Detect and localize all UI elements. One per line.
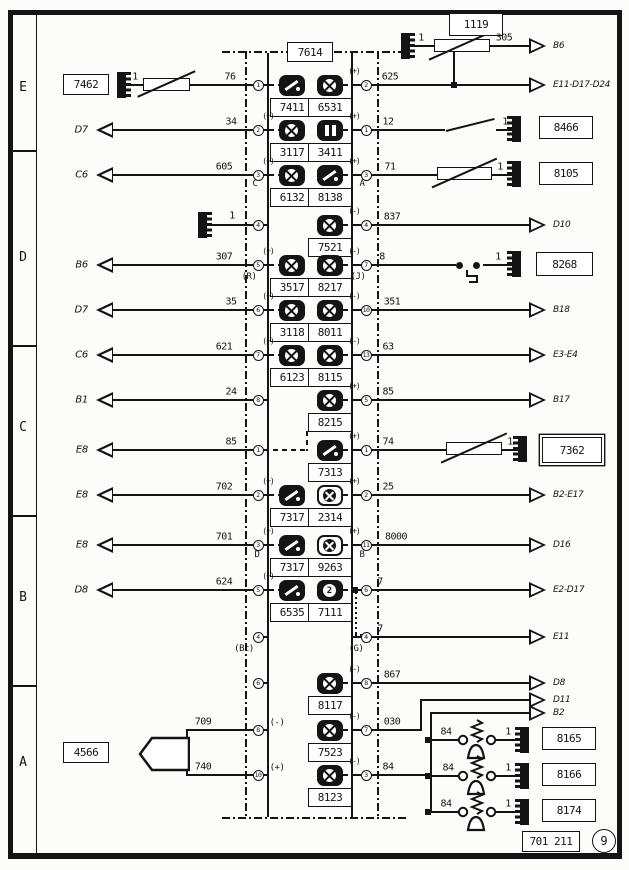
wiring-diagram-page: E D C B A D7C6B6D7C6B1E8E8E8D8B6E11-D17-… [0,0,629,870]
wire-label: 1 [502,117,508,128]
polarity-sign: (+) [262,527,273,536]
polarity-sign: (+) [262,572,273,581]
flow-arrow-left-inner [101,260,112,270]
wire-label: 84 [440,727,451,738]
contact-dot [456,262,463,269]
terminal-pin: 13 [361,350,372,361]
component-box-7462: 7462 [63,74,109,95]
icon-label-8115: 8115 [308,368,352,387]
ground-symbol [520,763,529,789]
indicator-icon-3411 [317,120,343,141]
icon-link [343,544,351,546]
icon-link [343,774,351,776]
polarity-sign: (+) [348,527,359,536]
wire-label: 030 [384,717,401,728]
schematic-line [371,494,530,496]
polarity-sign: (+) [348,382,359,391]
icon-link [269,544,279,546]
flow-arrow-right-inner [531,220,542,230]
polarity-sign: (+) [348,157,359,166]
icon-link [269,309,279,311]
flow-arrow-right-inner [531,41,542,51]
icon-link [343,129,351,131]
pin-stub [353,636,361,638]
ground-hatch [410,33,415,59]
schematic-line [112,399,253,401]
terminal-pin: 6 [253,305,264,316]
icon-link [343,174,351,176]
wire-label: 1 [505,727,511,738]
wire-label: 1 [507,437,513,448]
polarity-sign: (+) [262,157,273,166]
schematic-line [420,699,530,701]
gauge-icon-7313 [317,440,343,461]
icon-label-7111: 7111 [308,603,352,622]
contact-dot [473,262,480,269]
flow-label: B1 [75,395,88,406]
terminal-pin: 1 [253,445,264,456]
schematic-line [112,494,253,496]
ground-hatch [507,251,512,277]
wire-label: 305 [496,33,513,44]
schematic-line [371,774,430,776]
indicator-icon-7521 [317,215,343,236]
terminal-pin: 4 [361,632,372,643]
wire-label: 1 [497,162,503,173]
icon-link [343,682,351,684]
flow-arrow-right-inner [531,80,542,90]
icon-glyph [296,497,300,501]
indicator-icon-6531 [317,75,343,96]
schematic-line [453,51,455,86]
unit-id-box: 7614 [287,42,333,62]
ground-hatch [515,799,520,825]
terminal-pin: 7 [253,350,264,361]
polarity-sign: (-) [348,207,359,216]
wire-label: 12 [382,117,393,128]
flow-arrow-right-inner [531,540,542,550]
wire-label: 8000 [385,532,407,543]
schematic-line [371,174,437,176]
icon-label-8217: 8217 [308,278,352,297]
wire-label: 709 [195,717,212,728]
connector-label: D [255,550,260,560]
flow-label: B18 [553,305,570,315]
polarity-sign: (+) [262,337,273,346]
schematic-line [371,589,530,591]
polarity-sign: (-) [348,337,359,346]
terminal-pin: 1 [361,445,372,456]
wire-label: 625 [382,72,399,83]
terminal-pin: 8 [361,678,372,689]
wire-label: 837 [384,212,401,223]
schematic-line [112,544,253,546]
wire-label: 867 [384,670,401,681]
terminal-pin: 10 [361,305,372,316]
wire-label: 1 [495,252,501,263]
schematic-line [490,45,530,47]
flow-arrow-right-inner [531,490,542,500]
component-box-4566: 4566 [63,742,109,763]
flow-label: C6 [75,350,88,361]
schematic-line [469,281,478,283]
pin-stub [353,774,361,776]
polarity-sign: (-) [348,712,359,721]
flow-label: C6 [75,170,88,181]
icon-label-2314: 2314 [308,508,352,527]
indicator-icon-2314 [317,485,343,506]
schematic-line [306,431,308,451]
terminal-pin: 4 [253,632,264,643]
pin-stub [353,129,361,131]
icon-link [343,729,351,731]
terminal-pin: 6 [253,678,264,689]
pin-stub [353,84,361,86]
flow-label: E3-E4 [553,350,578,360]
polarity-sign: (+) [262,477,273,486]
schematic-line [371,729,422,731]
flow-arrow-left-inner [101,125,112,135]
terminal-pin: 2 [253,490,264,501]
flow-arrow-right-inner [531,305,542,315]
schematic-line [264,449,308,451]
component-box-8105: 8105 [539,162,593,185]
schematic-line [371,354,530,356]
terminal-pin: 7 [361,260,372,271]
icon-glyph: 2 [323,584,336,597]
ground-hatch [515,763,520,789]
wire-label: 63 [382,342,393,353]
icon-glyph [296,87,300,91]
indicator-icon-8215 [317,390,343,411]
pin-stub [353,682,361,684]
polarity-sign: (-) [348,757,359,766]
indicator-icon-7111: 2 [317,580,343,601]
ground-hatch [207,212,212,238]
wire-label: 1 [229,211,235,222]
junction-dot [451,82,457,88]
schematic-line [371,636,530,638]
terminal-pin: 8 [253,395,264,406]
schematic-line [430,712,432,813]
wire-label: 702 [216,482,233,493]
wire-label: 84 [442,763,453,774]
schematic-line [245,51,247,819]
flow-arrow-right-inner [531,708,542,718]
icon-link [343,494,351,496]
indicator-icon-6123 [279,345,305,366]
flow-label: D11 [553,695,570,705]
terminal-pin: 2 [361,490,372,501]
flow-label: E8 [76,540,88,551]
flow-label: D8 [553,678,565,688]
flow-label: B17 [553,395,570,405]
schematic-line [112,354,253,356]
icon-link [269,174,279,176]
schematic-line [267,53,269,817]
flow-label: B2-E17 [553,490,584,500]
schematic-line [371,309,530,311]
indicator-icon-3118 [279,300,305,321]
indicator-icon-3517 [279,255,305,276]
flow-arrow-left-inner [101,490,112,500]
pin-stub [353,729,361,731]
pin-stub [353,224,361,226]
schematic-line [208,224,253,226]
gauge-icon-7317 [279,535,305,556]
ground-symbol [401,33,410,59]
pin-stub [353,589,361,591]
schematic-line [430,712,540,714]
flow-arrow-left-inner [101,585,112,595]
flow-label: B6 [75,260,88,271]
wire-label: 24 [225,387,236,398]
polarity-sign: (+) [262,292,273,301]
ground-hatch [513,436,518,462]
connector-label: (J) [351,272,366,282]
flow-arrow-left-inner [101,305,112,315]
connector-label: (-) [270,718,285,728]
polarity-sign: (+) [348,432,359,441]
terminal-pin: 10 [253,770,264,781]
indicator-icon-8117 [317,673,343,694]
terminal-pin: 6 [361,585,372,596]
component-box-8268: 8268 [536,252,593,276]
junction-dot [425,809,431,815]
schematic-line [377,51,379,819]
gauge-icon-6535 [279,580,305,601]
terminal-pin: 5 [361,395,372,406]
schematic-line [371,544,530,546]
polarity-sign: (-) [348,665,359,674]
ground-symbol [512,116,521,142]
icon-link [269,264,279,266]
ground-symbol [518,436,527,462]
schematic-line [371,129,445,131]
pin-stub [353,309,361,311]
icon-label-8117: 8117 [308,696,352,715]
wire-label: 7 [377,624,383,635]
ground-hatch [507,161,512,187]
wire-label: 85 [382,387,393,398]
icon-glyph [296,592,300,596]
flow-arrow-right-inner [531,350,542,360]
ground-symbol [520,799,529,825]
wire-label: 76 [224,72,235,83]
schematic-line [112,264,253,266]
terminal-pin: 3 [253,540,264,551]
wire-label: 84 [440,799,451,810]
schematic-line [188,729,253,731]
pin-stub [353,449,361,451]
terminal-pin: 8 [253,725,264,736]
icon-link [343,449,351,451]
connector-label: B [360,550,365,560]
page-number: 9 [592,829,616,853]
terminal-pin: 5 [253,585,264,596]
icon-label-3411: 3411 [308,143,352,162]
terminal-pin: 3 [361,770,372,781]
ground-hatch [126,72,131,98]
terminal-pin: 2 [361,80,372,91]
polarity-sign: (-) [348,247,359,256]
wire-label: 85 [225,437,236,448]
schematic-line [112,174,253,176]
component-box-8165: 8165 [542,727,596,750]
ground-symbol [117,72,126,98]
flow-label: D7 [75,305,88,316]
flow-label: D10 [553,220,570,230]
icon-glyph [334,452,338,456]
schematic-line [371,264,456,266]
icon-link [269,589,279,591]
icon-label-8011: 8011 [308,323,352,342]
flow-arrow-right-inner [531,695,542,705]
schematic-line [112,129,253,131]
schematic-line [355,592,357,636]
schematic-line [188,774,253,776]
terminal-pin: 4 [253,220,264,231]
flow-arrow-right-inner [531,395,542,405]
wire-label: 8 [379,252,385,263]
wire-label: 1 [505,799,511,810]
schematic-line [371,449,446,451]
wire-label: 84 [382,762,393,773]
schematic-line [371,224,530,226]
flow-arrow-right-inner [531,585,542,595]
terminal-pin: 1 [253,80,264,91]
ground-symbol [198,212,207,238]
polarity-sign: (+) [348,67,359,76]
wire-label: 624 [216,577,233,588]
ground-hatch [515,727,520,753]
polarity-sign: (+) [262,112,273,121]
gauge-icon-7411 [279,75,305,96]
icon-glyph [332,125,336,136]
flow-label: E2-D17 [553,585,584,595]
indicator-icon-6132 [279,165,305,186]
flow-label: E11 [553,632,569,642]
schematic-canvas: D7C6B6D7C6B1E8E8E8D8B6E11-D17-D24D10B18E… [0,0,629,870]
icon-label-7523: 7523 [308,743,352,762]
junction-dot [425,737,431,743]
indicator-icon-9263 [317,535,343,556]
indicator-icon-8115 [317,345,343,366]
pump-symbol [453,790,499,838]
flow-arrow-left-inner [101,540,112,550]
schematic-line [371,399,530,401]
flow-arrow-left-inner [101,395,112,405]
wire-label: 7 [377,577,383,588]
wire-label: 605 [216,162,233,173]
pin-stub [353,494,361,496]
wire-label: 1 [132,72,138,83]
terminal-pin: 11 [361,540,372,551]
component-box-7362: 7362 [542,437,602,463]
wire-label: 701 [216,532,233,543]
gauge-icon-7317 [279,485,305,506]
icon-link [343,589,351,591]
schematic-line [222,817,408,819]
switch-symbol [446,118,495,132]
flow-label: E8 [76,490,88,501]
junction-dot [425,773,431,779]
connector-label: (R) [242,272,257,282]
wire-label: 621 [216,342,233,353]
flow-label: D7 [75,125,88,136]
pin-stub [353,174,361,176]
plate-label: 701 211 [522,831,580,852]
wire-label: 74 [382,437,393,448]
polarity-sign: (-) [348,292,359,301]
icon-link [343,224,351,226]
horn-symbol [138,736,190,776]
schematic-line [190,84,253,86]
flow-arrow-left-inner [101,445,112,455]
icon-link [343,309,351,311]
icon-link [269,129,279,131]
icon-link [269,84,279,86]
gauge-icon-8138 [317,165,343,186]
ground-symbol [512,251,521,277]
flow-label: D8 [75,585,88,596]
icon-link [269,354,279,356]
connector-label: (Bc) [234,644,254,654]
schematic-line [112,589,253,591]
wire-label: 1 [418,33,424,44]
wire-label: 25 [382,482,393,493]
flow-label: D16 [553,540,570,550]
connector-label: (+) [270,763,285,773]
icon-label-8123: 8123 [308,788,352,807]
terminal-pin: 4 [361,220,372,231]
indicator-icon-8123 [317,765,343,786]
flow-arrow-right-inner [531,678,542,688]
wire-label: 71 [384,162,395,173]
indicator-icon-7523 [317,720,343,741]
component-box-8166: 8166 [542,763,596,786]
wire-label: 34 [225,117,236,128]
polarity-sign: (+) [262,247,273,256]
flow-label: B2 [553,708,564,718]
icon-link [343,264,351,266]
flow-arrow-right-inner [531,632,542,642]
component-box-8466: 8466 [539,116,593,139]
flow-label: E8 [76,445,88,456]
wire-label: 740 [195,762,212,773]
pin-stub [353,354,361,356]
icon-label-6531: 6531 [308,98,352,117]
wire-label: 1 [505,763,511,774]
icon-label-8215: 8215 [308,413,352,432]
flow-arrow-left-inner [101,350,112,360]
schematic-line [371,682,530,684]
connector-label: C [253,179,258,189]
terminal-pin: 5 [253,260,264,271]
icon-link [269,494,279,496]
ground-symbol [512,161,521,187]
terminal-pin: 2 [253,125,264,136]
indicator-icon-8217 [317,255,343,276]
terminal-pin: 7 [361,725,372,736]
flow-arrow-left-inner [101,170,112,180]
indicator-icon-8011 [317,300,343,321]
pin-stub [353,544,361,546]
ground-symbol [520,727,529,753]
icon-glyph [325,125,329,136]
pin-stub [353,399,361,401]
wire-label: 307 [216,252,233,263]
